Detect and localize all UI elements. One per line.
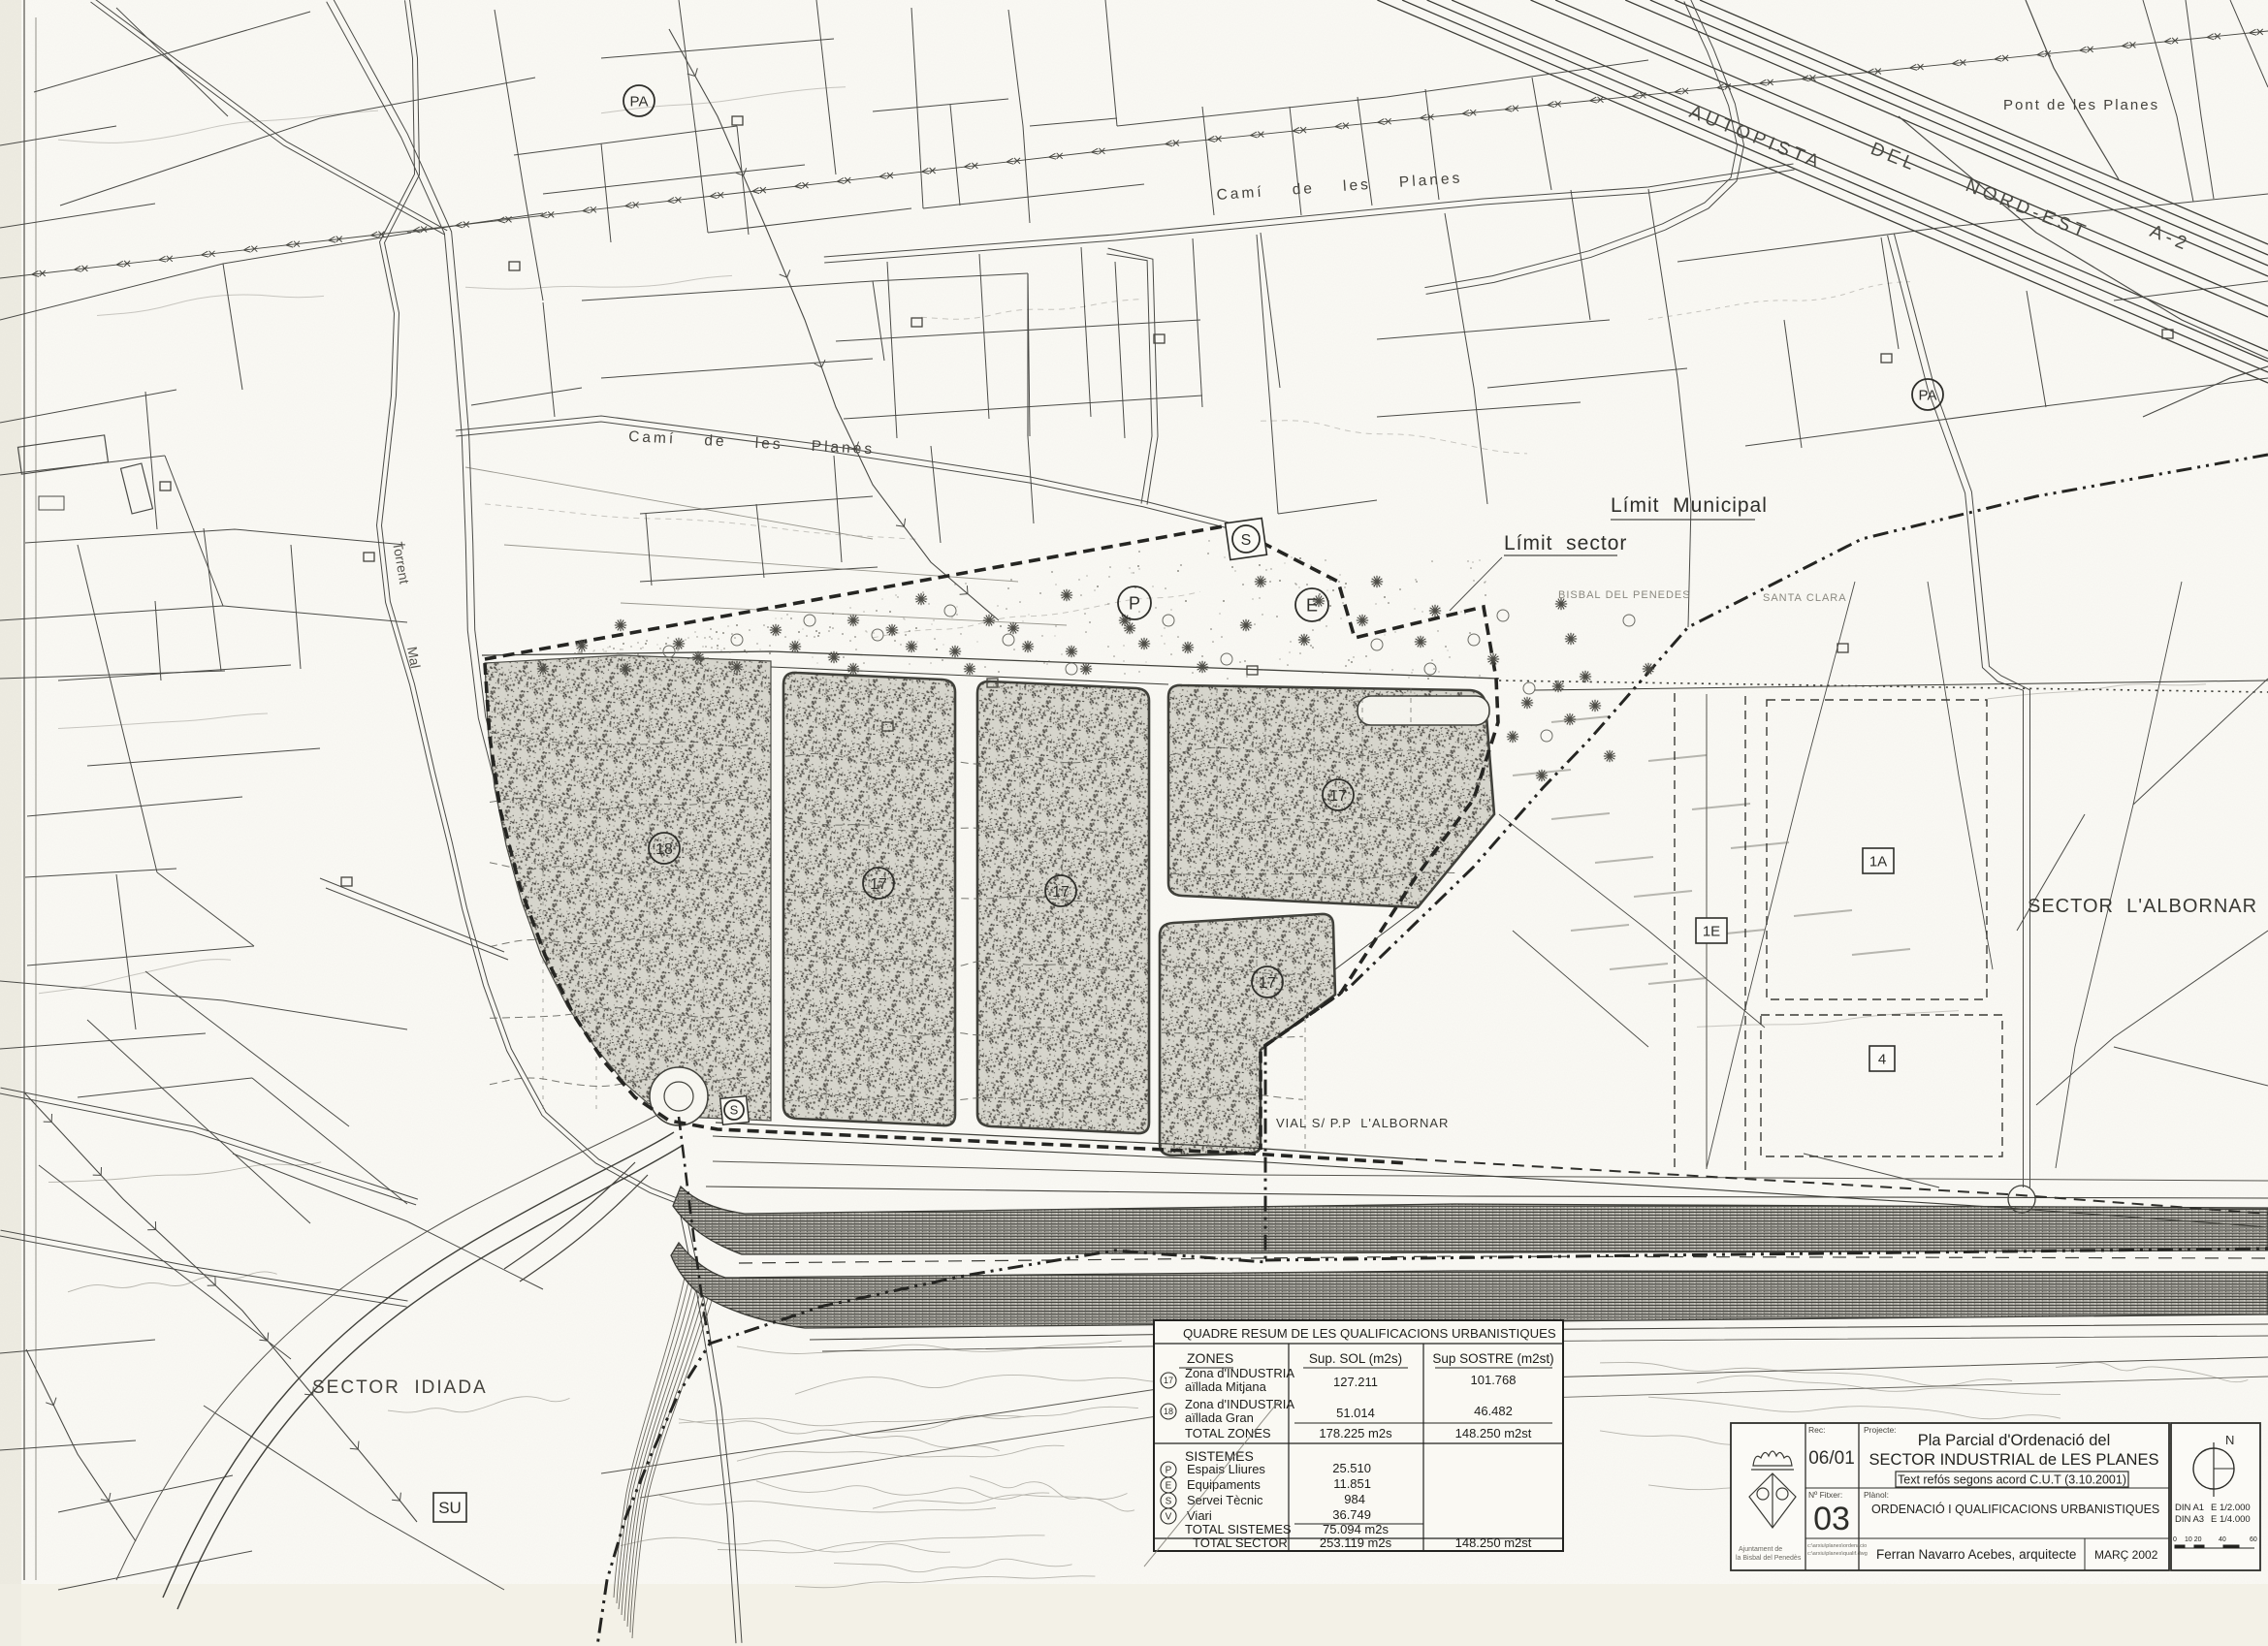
svg-text:TOTAL SISTEMES: TOTAL SISTEMES bbox=[1185, 1522, 1292, 1536]
svg-text:aïllada Mitjana: aïllada Mitjana bbox=[1185, 1379, 1267, 1394]
svg-text:SECTOR INDUSTRIAL de LES PLANE: SECTOR INDUSTRIAL de LES PLANES bbox=[1869, 1451, 2159, 1469]
svg-text:SECTOR IDIADA: SECTOR IDIADA bbox=[312, 1377, 488, 1398]
svg-text:Pont de les Planes: Pont de les Planes bbox=[2003, 97, 2159, 113]
svg-text:17: 17 bbox=[1259, 975, 1276, 992]
svg-text:Nº Fitxer:: Nº Fitxer: bbox=[1808, 1490, 1842, 1500]
svg-text:c:\arxiu\planes\ordenacio: c:\arxiu\planes\ordenacio bbox=[1807, 1543, 1867, 1549]
svg-text:VIAL S/ P.P L'ALBORNAR: VIAL S/ P.P L'ALBORNAR bbox=[1276, 1116, 1449, 1130]
svg-text:10 20: 10 20 bbox=[2185, 1536, 2202, 1543]
svg-text:Pla Parcial d'Ordenació del: Pla Parcial d'Ordenació del bbox=[1918, 1432, 2111, 1449]
svg-text:PA: PA bbox=[1919, 387, 1937, 403]
svg-text:25.510: 25.510 bbox=[1332, 1461, 1371, 1475]
svg-text:SU: SU bbox=[438, 1499, 462, 1517]
svg-text:Text refós segons acord C.U.T: Text refós segons acord C.U.T (3.10.2001… bbox=[1898, 1473, 2126, 1487]
svg-text:SANTA CLARA: SANTA CLARA bbox=[1763, 592, 1847, 604]
svg-text:75.094 m2s: 75.094 m2s bbox=[1323, 1522, 1389, 1536]
svg-text:P: P bbox=[1166, 1466, 1172, 1476]
svg-text:c:\arxiu\planes\qualif.dwg: c:\arxiu\planes\qualif.dwg bbox=[1807, 1551, 1868, 1557]
svg-text:11.851: 11.851 bbox=[1333, 1476, 1371, 1491]
svg-text:Plànol:: Plànol: bbox=[1864, 1490, 1889, 1500]
svg-text:Ajuntament de: Ajuntament de bbox=[1739, 1546, 1782, 1553]
svg-text:17: 17 bbox=[1052, 884, 1070, 901]
svg-text:QUADRE RESUM DE LES QUALIFICAC: QUADRE RESUM DE LES QUALIFICACIONS URBAN… bbox=[1183, 1326, 1556, 1341]
svg-text:TOTAL ZONES: TOTAL ZONES bbox=[1185, 1426, 1271, 1440]
svg-text:Zona d'INDUSTRIA: Zona d'INDUSTRIA bbox=[1185, 1397, 1294, 1411]
svg-text:18: 18 bbox=[655, 841, 673, 858]
svg-text:Sup SOSTRE (m2st): Sup SOSTRE (m2st) bbox=[1432, 1351, 1553, 1366]
svg-text:4: 4 bbox=[1878, 1051, 1886, 1067]
svg-text:TOTAL SECTOR: TOTAL SECTOR bbox=[1193, 1535, 1288, 1550]
svg-text:60: 60 bbox=[2250, 1536, 2257, 1543]
svg-text:148.250 m2st: 148.250 m2st bbox=[1455, 1535, 1532, 1550]
svg-text:Zona d'INDUSTRIA: Zona d'INDUSTRIA bbox=[1185, 1366, 1294, 1380]
svg-text:DIN A1: DIN A1 bbox=[2175, 1503, 2204, 1513]
svg-text:984: 984 bbox=[1344, 1492, 1365, 1506]
svg-text:ZONES: ZONES bbox=[1187, 1350, 1233, 1366]
svg-text:PA: PA bbox=[630, 93, 649, 110]
svg-text:253.119 m2s: 253.119 m2s bbox=[1320, 1535, 1392, 1550]
svg-text:BISBAL DEL PENEDES: BISBAL DEL PENEDES bbox=[1558, 589, 1691, 601]
svg-text:17: 17 bbox=[870, 876, 887, 893]
svg-text:la Bisbal del Penedès: la Bisbal del Penedès bbox=[1736, 1555, 1802, 1562]
svg-text:E 1/2.000: E 1/2.000 bbox=[2211, 1503, 2251, 1513]
svg-text:1E: 1E bbox=[1703, 923, 1720, 939]
svg-text:178.225 m2s: 178.225 m2s bbox=[1319, 1426, 1392, 1440]
svg-text:Viari: Viari bbox=[1187, 1508, 1212, 1523]
svg-text:V: V bbox=[1166, 1512, 1172, 1523]
svg-text:1A: 1A bbox=[1869, 853, 1887, 870]
svg-text:Espais Lliures: Espais Lliures bbox=[1187, 1462, 1265, 1476]
svg-text:Límit sector: Límit sector bbox=[1504, 532, 1627, 554]
svg-text:127.211: 127.211 bbox=[1333, 1375, 1378, 1389]
svg-text:Sup. SOL (m2s): Sup. SOL (m2s) bbox=[1309, 1351, 1402, 1366]
svg-text:E: E bbox=[1306, 595, 1318, 615]
svg-text:0: 0 bbox=[2173, 1536, 2177, 1543]
svg-text:P: P bbox=[1129, 593, 1140, 613]
svg-text:S: S bbox=[1241, 532, 1252, 549]
svg-text:46.482: 46.482 bbox=[1474, 1404, 1513, 1418]
svg-text:17: 17 bbox=[1164, 1376, 1173, 1385]
svg-text:Rec:: Rec: bbox=[1808, 1425, 1825, 1435]
svg-text:ORDENACIÓ I QUALIFICACIONS URB: ORDENACIÓ I QUALIFICACIONS URBANISTIQUES bbox=[1871, 1502, 2159, 1516]
svg-text:SECTOR L'ALBORNAR: SECTOR L'ALBORNAR bbox=[2028, 896, 2257, 917]
svg-text:S: S bbox=[1166, 1497, 1172, 1507]
svg-text:03: 03 bbox=[1813, 1501, 1850, 1537]
svg-text:S: S bbox=[730, 1103, 739, 1118]
svg-text:17: 17 bbox=[1329, 788, 1347, 805]
svg-text:06/01: 06/01 bbox=[1808, 1448, 1855, 1469]
svg-text:51.014: 51.014 bbox=[1336, 1406, 1375, 1420]
svg-text:DIN A3: DIN A3 bbox=[2175, 1514, 2204, 1525]
svg-text:Ferran Navarro Acebes, arquite: Ferran Navarro Acebes, arquitecte bbox=[1876, 1547, 2076, 1562]
svg-text:40: 40 bbox=[2219, 1536, 2226, 1543]
svg-text:Equipaments: Equipaments bbox=[1187, 1477, 1261, 1492]
svg-text:36.749: 36.749 bbox=[1332, 1507, 1371, 1522]
svg-text:aïllada Gran: aïllada Gran bbox=[1185, 1410, 1254, 1425]
svg-text:E: E bbox=[1166, 1481, 1172, 1492]
svg-text:101.768: 101.768 bbox=[1471, 1373, 1517, 1387]
svg-text:N: N bbox=[2225, 1433, 2234, 1447]
svg-text:Projecte:: Projecte: bbox=[1864, 1425, 1897, 1435]
svg-text:18: 18 bbox=[1164, 1407, 1173, 1416]
svg-text:148.250 m2st: 148.250 m2st bbox=[1455, 1426, 1532, 1440]
svg-text:Límit Municipal: Límit Municipal bbox=[1611, 494, 1768, 517]
svg-text:MARÇ 2002: MARÇ 2002 bbox=[2094, 1548, 2158, 1562]
svg-text:E 1/4.000: E 1/4.000 bbox=[2211, 1514, 2251, 1525]
